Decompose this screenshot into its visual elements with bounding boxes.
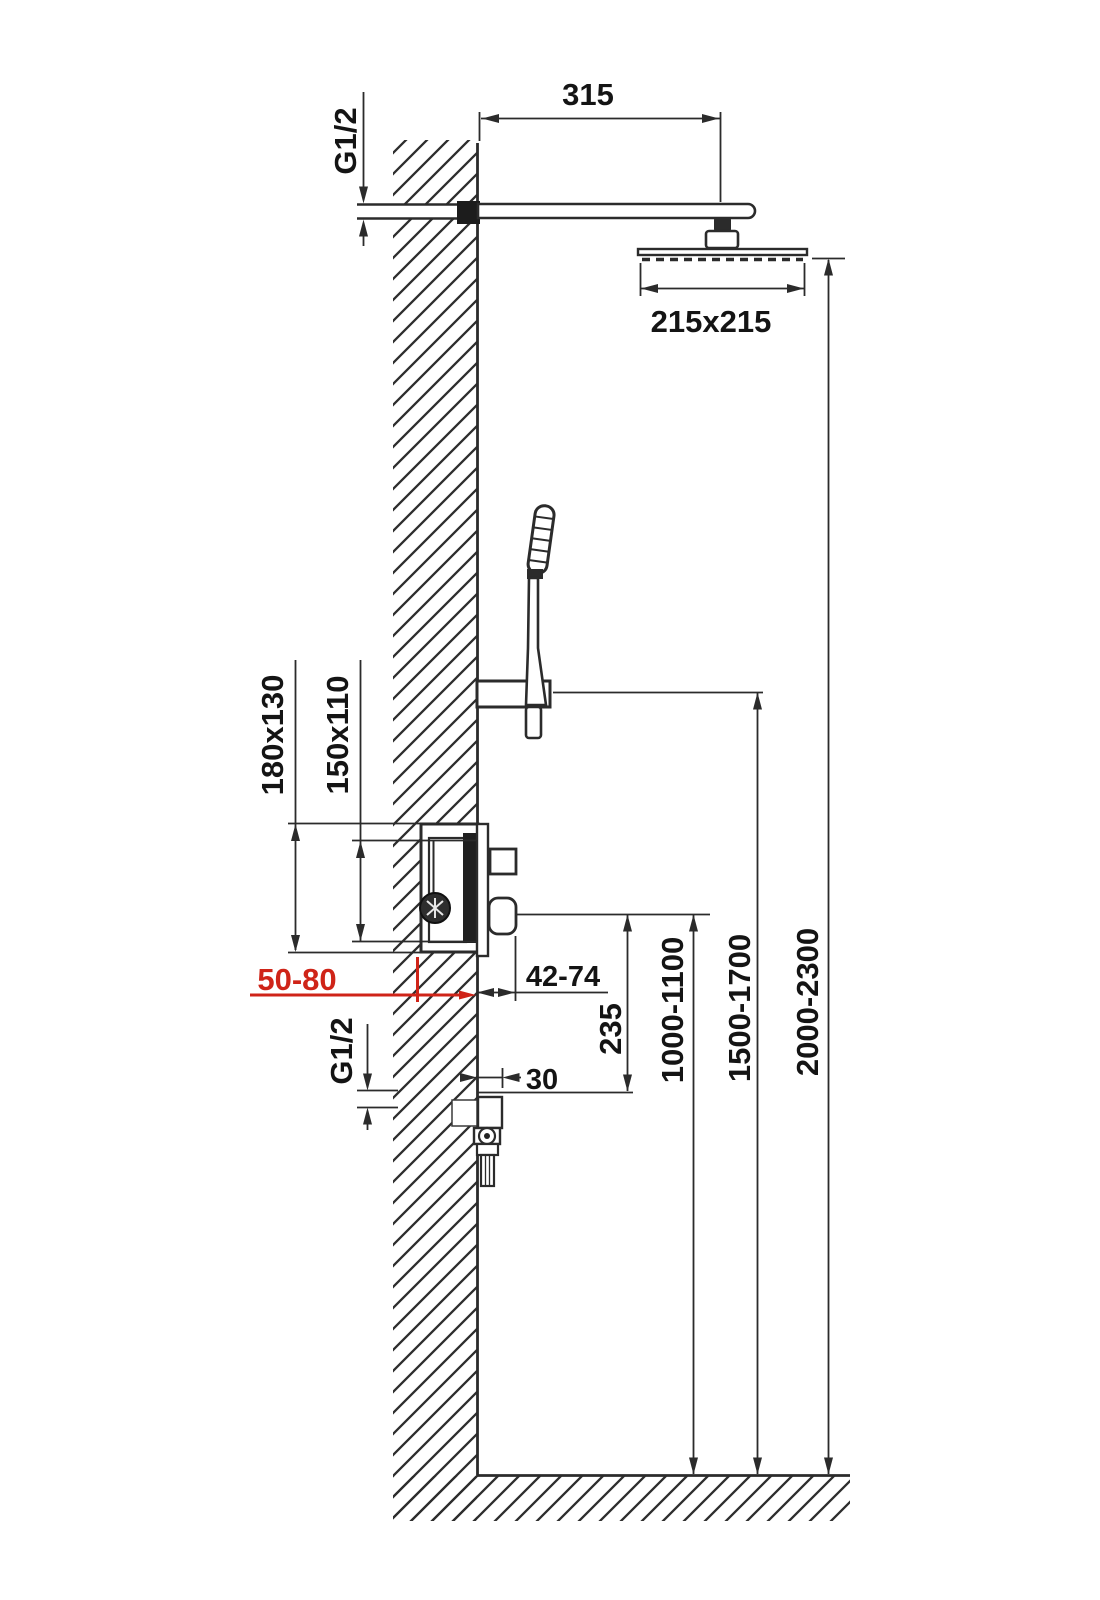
dim-connection-bottom-label: G1/2 [324, 1017, 359, 1084]
dim-box-outer-label: 180x130 [255, 675, 290, 796]
dim-connection-top-label: G1/2 [328, 107, 363, 174]
wall-fitting [457, 201, 480, 224]
overhead-shower-head [638, 218, 807, 260]
hand-shower [477, 505, 555, 738]
dim-mixer-height-label: 1000-1100 [655, 937, 690, 1084]
floor-hatch [393, 1476, 850, 1522]
dim-arm-length: 315 [480, 77, 721, 202]
mixer-lever [489, 898, 516, 934]
outlet-recess [452, 1100, 477, 1126]
dim-mixer-height: 1000-1100 [655, 915, 698, 1475]
dim-embed-depth-label: 50-80 [257, 962, 336, 997]
outlet-tube [481, 1155, 494, 1186]
dim-spout-drop: 235 [593, 915, 632, 1092]
outlet-fitting [478, 1097, 502, 1128]
dim-hand-shower-height: 1500-1700 [722, 693, 762, 1475]
diagram-canvas: 315 G1/2 215x215 180x130 150x110 [0, 0, 1100, 1600]
hand-shower-body [526, 578, 546, 705]
mixer-box-inner [429, 838, 466, 942]
dim-arm-length-label: 315 [562, 77, 614, 112]
ball-joint [714, 218, 731, 231]
diverter-knob [490, 849, 516, 874]
dim-connection-top: G1/2 [328, 92, 368, 246]
dim-head-size-label: 215x215 [651, 304, 772, 339]
shower-installation-diagram: 315 G1/2 215x215 180x130 150x110 [0, 0, 1100, 1600]
hand-shower-grip [527, 505, 555, 575]
dim-trim-projection: 42-74 [477, 936, 608, 1001]
concealed-mixer [420, 824, 516, 956]
shower-arm [478, 204, 755, 218]
head-plate [638, 249, 807, 255]
cover-plate [477, 824, 488, 956]
dim-spout-drop-label: 235 [593, 1003, 628, 1055]
dim-trim-projection-label: 42-74 [526, 961, 600, 993]
dim-head-height-label: 2000-2300 [790, 928, 825, 1076]
dim-head-height: 2000-2300 [790, 259, 833, 1475]
hose-connector [526, 707, 541, 738]
dim-head-size: 215x215 [641, 263, 805, 339]
dim-box-inner-label: 150x110 [320, 676, 355, 795]
dim-hand-shower-height-label: 1500-1700 [722, 934, 757, 1082]
dim-connection-bottom: G1/2 [324, 1017, 398, 1130]
box-opening [463, 833, 478, 943]
dim-outlet-projection-label: 30 [526, 1064, 558, 1096]
